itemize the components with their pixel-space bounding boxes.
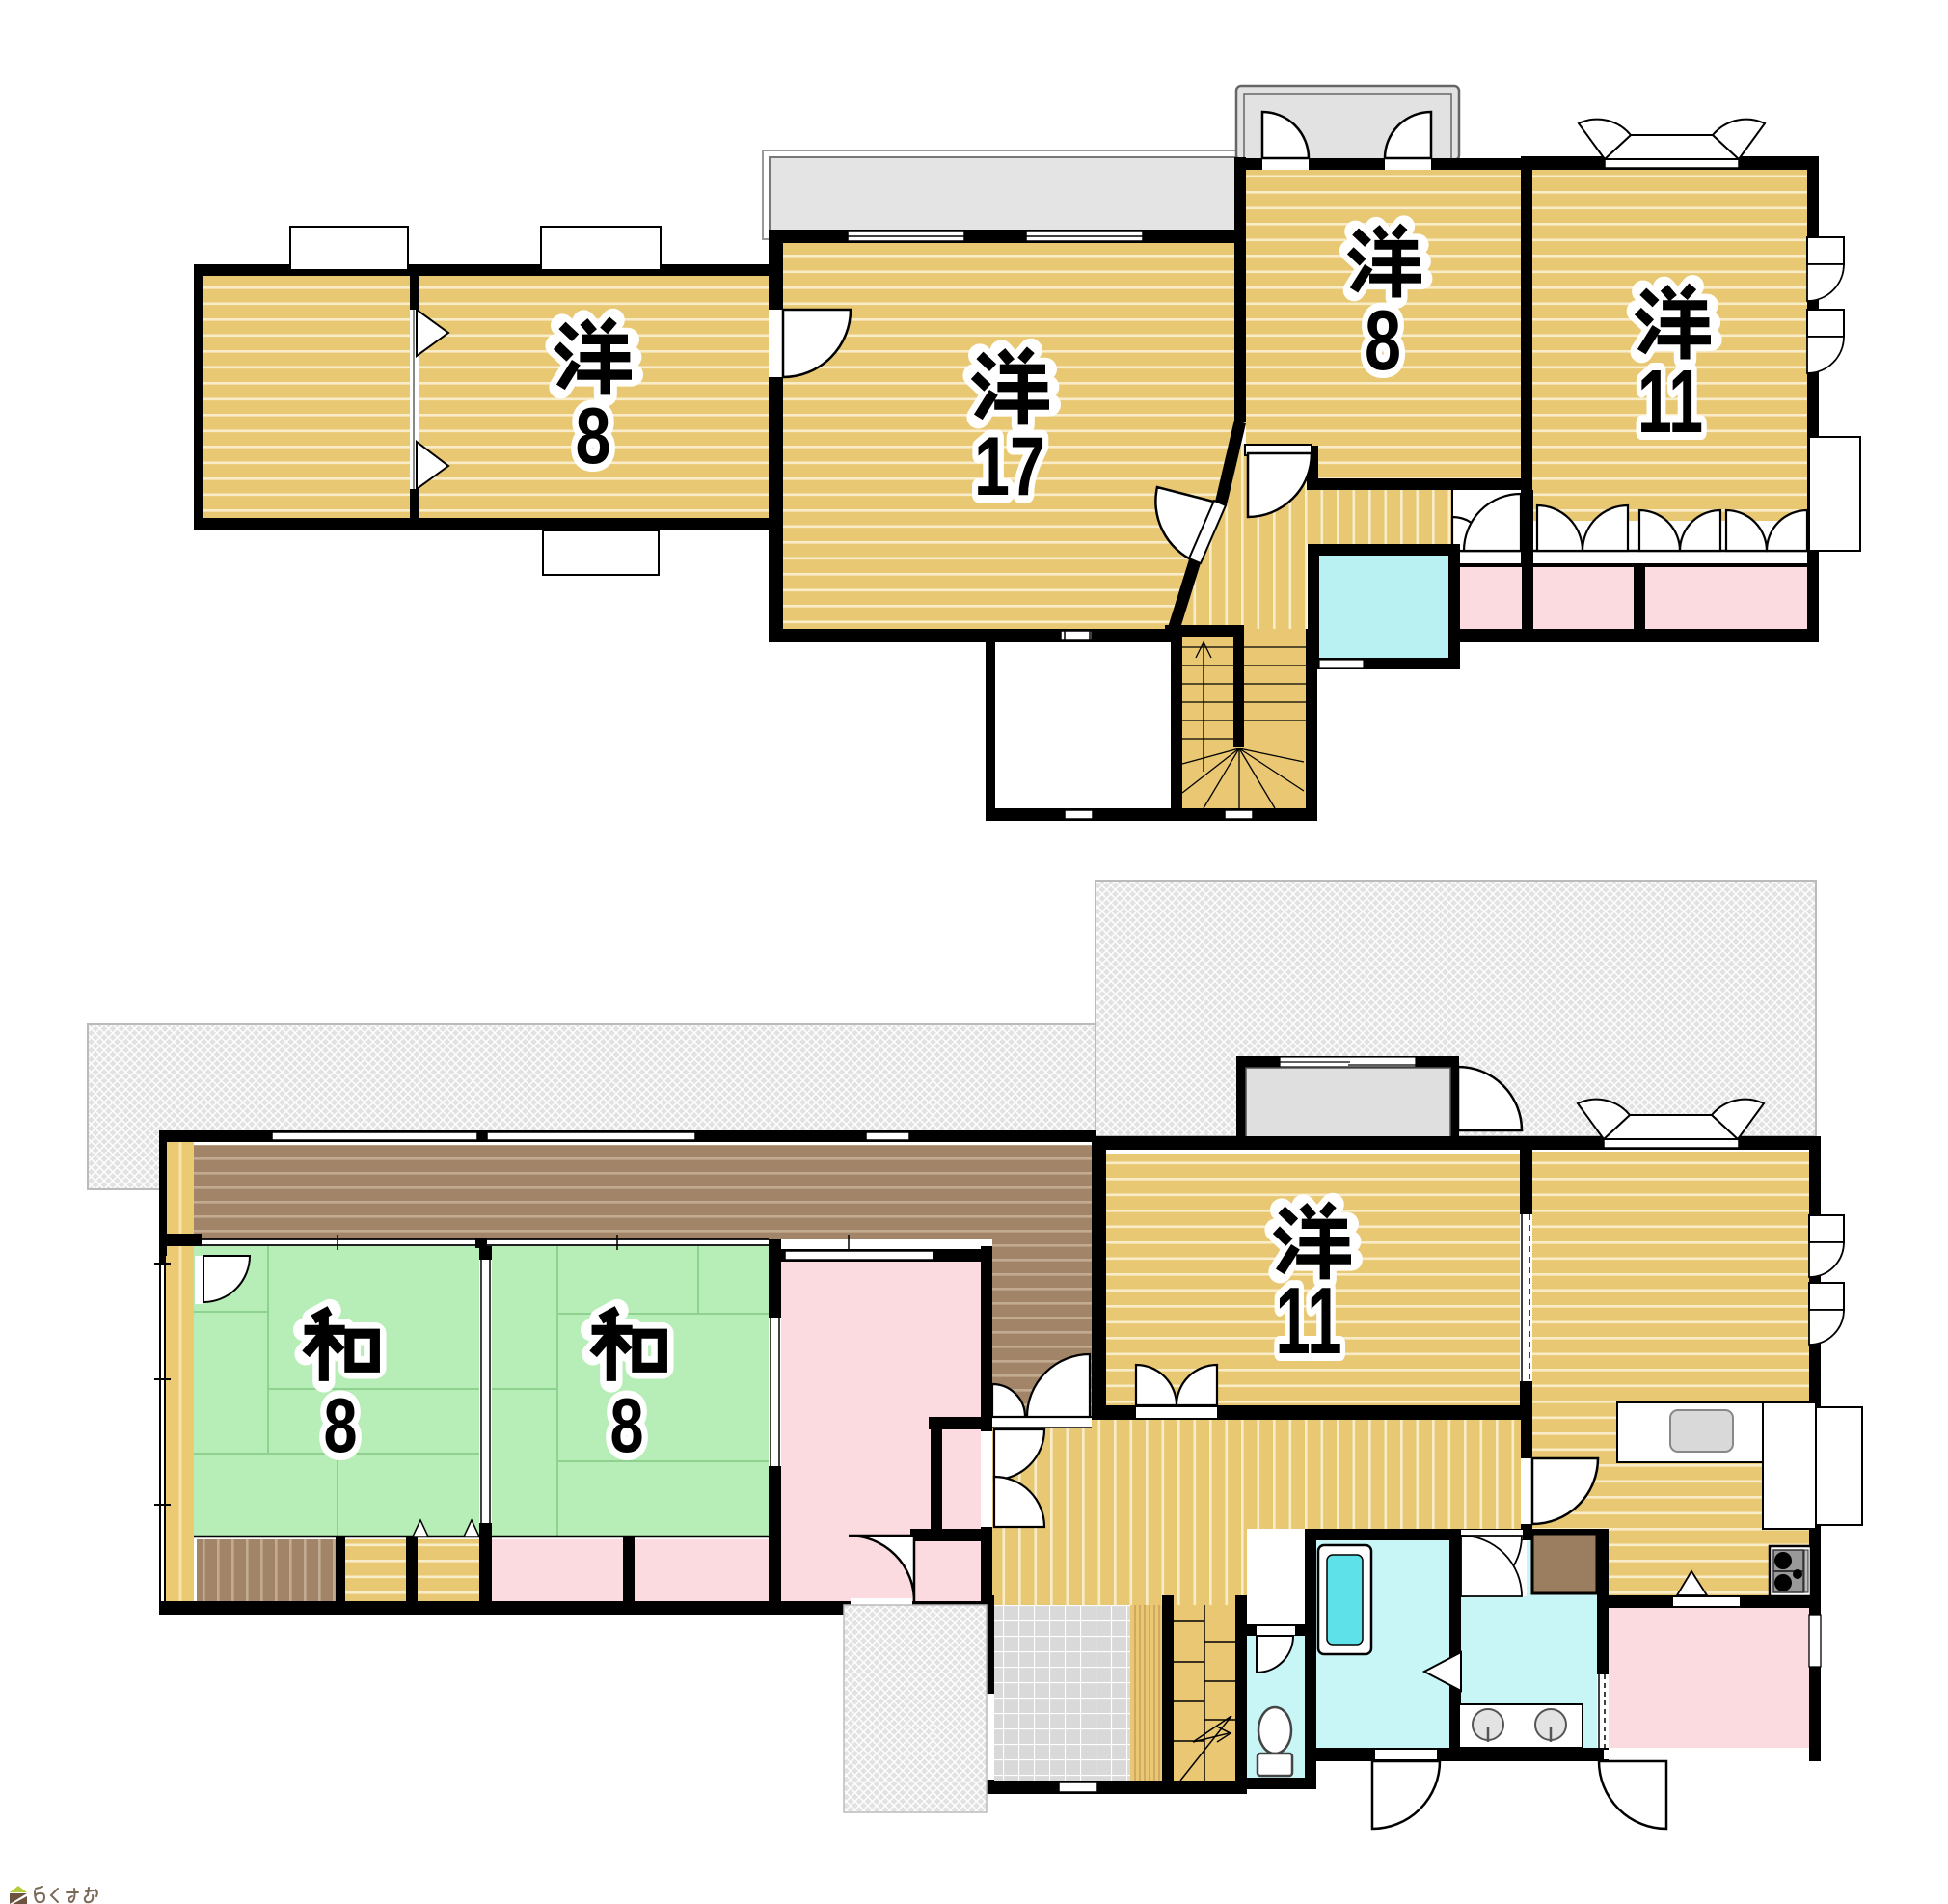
svg-text:8: 8: [610, 1382, 644, 1468]
svg-text:8: 8: [324, 1382, 358, 1468]
svg-text:8: 8: [1365, 292, 1401, 388]
svg-text:11: 11: [1276, 1267, 1342, 1374]
svg-text:8: 8: [576, 391, 611, 480]
svg-text:17: 17: [974, 421, 1045, 513]
svg-text:11: 11: [1637, 351, 1703, 451]
